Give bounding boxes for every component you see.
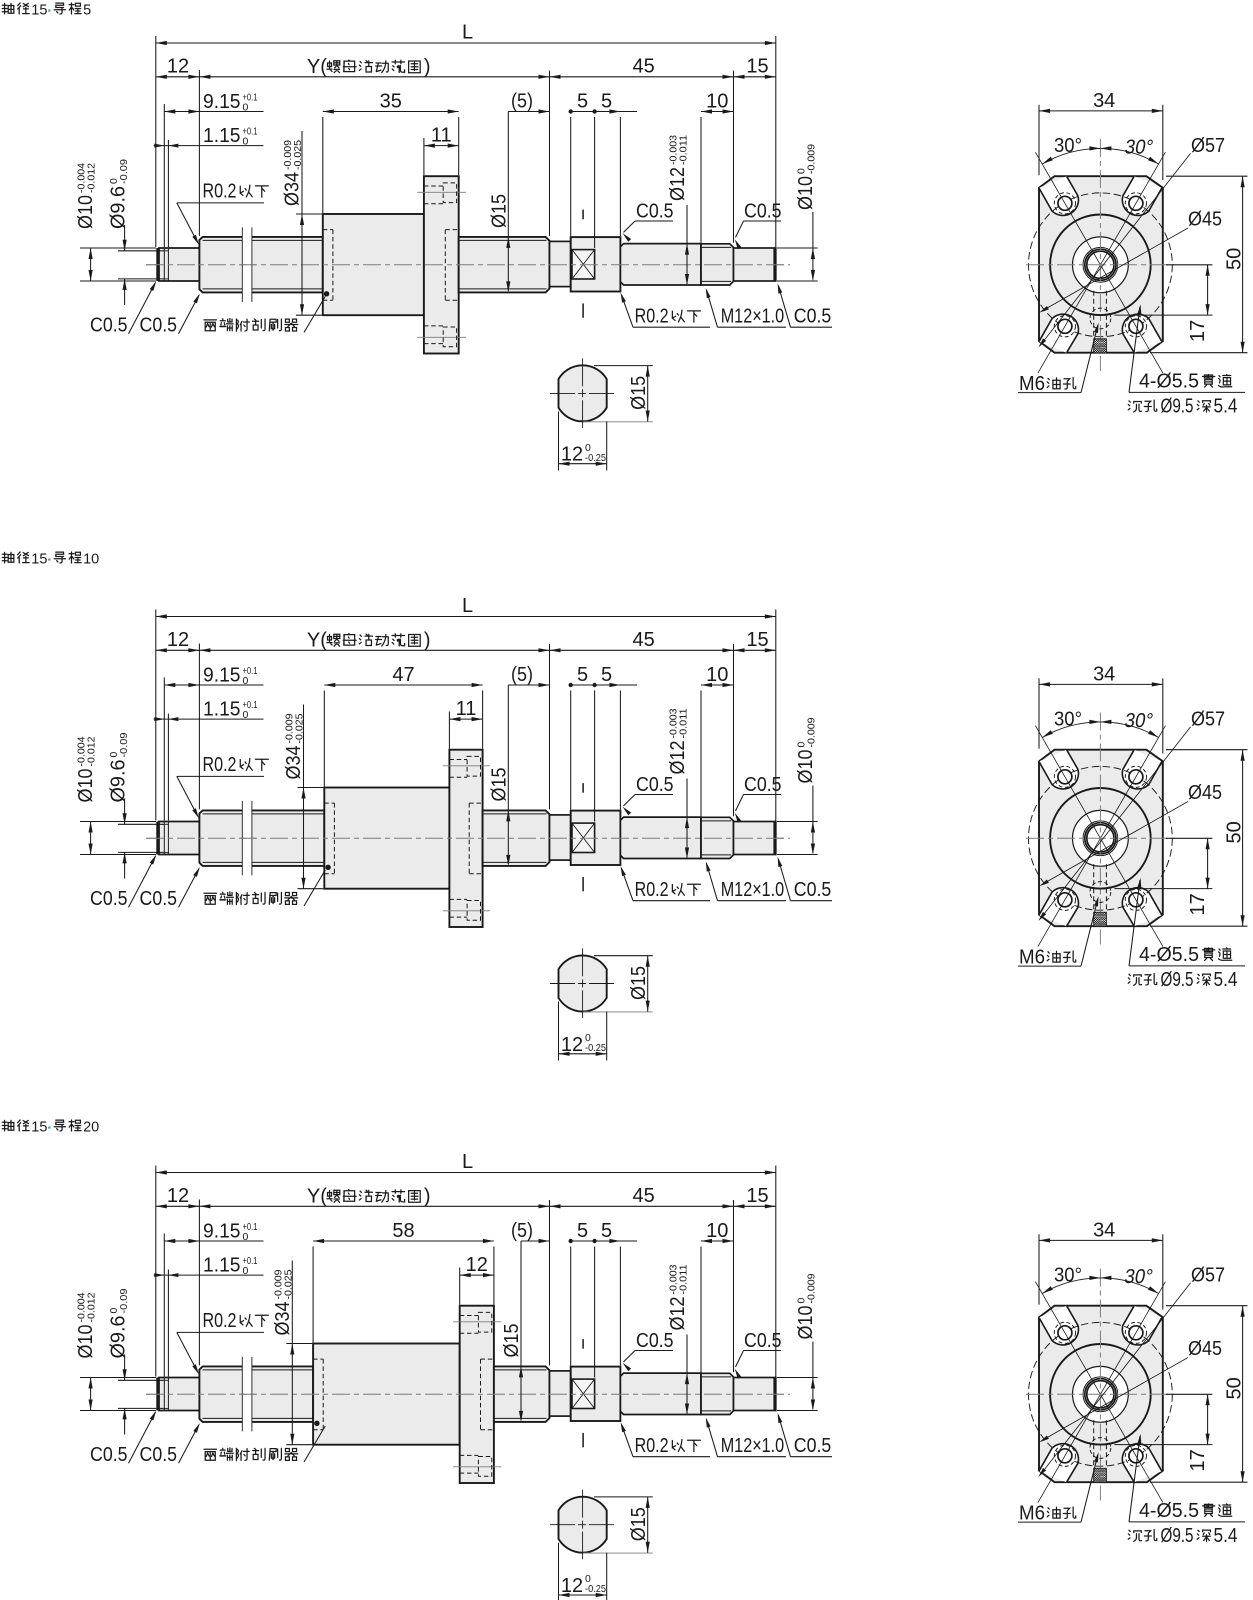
svg-text:Y(: Y( bbox=[307, 630, 327, 652]
svg-text:R0.2: R0.2 bbox=[203, 1310, 237, 1332]
svg-text:12: 12 bbox=[167, 56, 189, 78]
svg-text:C0.5: C0.5 bbox=[636, 774, 674, 796]
svg-text:R0.2: R0.2 bbox=[203, 181, 237, 203]
svg-text:4-Ø5.5: 4-Ø5.5 bbox=[1139, 1500, 1199, 1522]
svg-text:20: 20 bbox=[83, 1120, 99, 1136]
svg-text:Ø9.5: Ø9.5 bbox=[1161, 396, 1194, 418]
svg-text:1.15: 1.15 bbox=[203, 1255, 241, 1277]
svg-text:Ø9.5: Ø9.5 bbox=[1161, 969, 1194, 991]
svg-text:35: 35 bbox=[380, 91, 402, 113]
svg-text:-0.25: -0.25 bbox=[585, 1583, 606, 1595]
svg-text:Ø9.6: Ø9.6 bbox=[108, 760, 130, 803]
svg-text:12: 12 bbox=[466, 1254, 488, 1276]
svg-text:-0.011: -0.011 bbox=[678, 1264, 690, 1294]
svg-text:Ø9.5: Ø9.5 bbox=[1161, 1525, 1194, 1547]
svg-text:R0.2: R0.2 bbox=[635, 1435, 669, 1457]
svg-text:Ø15: Ø15 bbox=[489, 194, 511, 228]
svg-text:): ) bbox=[424, 630, 431, 652]
svg-text:50: 50 bbox=[1224, 248, 1246, 270]
svg-text:Ø34: Ø34 bbox=[272, 1302, 294, 1336]
svg-text:C0.5: C0.5 bbox=[744, 1330, 782, 1352]
svg-text:Ø10: Ø10 bbox=[795, 1306, 817, 1340]
svg-text:5: 5 bbox=[577, 664, 588, 686]
svg-text:15: 15 bbox=[31, 552, 47, 568]
svg-text:0: 0 bbox=[243, 675, 249, 687]
svg-text:5.4: 5.4 bbox=[1214, 969, 1238, 991]
svg-text:5.4: 5.4 bbox=[1214, 1525, 1238, 1547]
svg-text:C0.5: C0.5 bbox=[140, 315, 178, 337]
svg-text:Ø15: Ø15 bbox=[628, 966, 650, 1000]
svg-text:30°: 30° bbox=[1123, 710, 1155, 732]
svg-text:Ø15: Ø15 bbox=[489, 768, 511, 802]
svg-text:Y(: Y( bbox=[307, 1186, 327, 1208]
svg-text:C0.5: C0.5 bbox=[140, 888, 178, 910]
svg-text:C0.5: C0.5 bbox=[90, 888, 128, 910]
svg-text:C0.5: C0.5 bbox=[636, 1330, 674, 1352]
svg-text:Ø57: Ø57 bbox=[1191, 709, 1225, 731]
svg-text:9.15: 9.15 bbox=[203, 665, 241, 687]
svg-text:30°: 30° bbox=[1054, 1265, 1082, 1287]
svg-text:-0.009: -0.009 bbox=[806, 717, 818, 747]
svg-text:C0.5: C0.5 bbox=[90, 1444, 128, 1466]
svg-text:5: 5 bbox=[601, 91, 612, 113]
svg-text:-0.009: -0.009 bbox=[806, 144, 818, 174]
svg-text:30°: 30° bbox=[1123, 137, 1155, 159]
svg-text:Ø9.6: Ø9.6 bbox=[108, 186, 130, 229]
svg-text:9.15: 9.15 bbox=[203, 1221, 241, 1243]
svg-text:45: 45 bbox=[632, 56, 654, 78]
svg-text:Ø15: Ø15 bbox=[501, 1324, 523, 1358]
svg-text:C0.5: C0.5 bbox=[744, 201, 782, 223]
svg-text:Ø12: Ø12 bbox=[667, 1297, 689, 1331]
svg-text:R0.2: R0.2 bbox=[203, 754, 237, 776]
svg-text:50: 50 bbox=[1224, 1377, 1246, 1399]
svg-text:15: 15 bbox=[746, 1185, 768, 1207]
svg-text:5: 5 bbox=[601, 1220, 612, 1242]
svg-text:-0.09: -0.09 bbox=[118, 1288, 130, 1313]
svg-text:0: 0 bbox=[243, 1231, 249, 1243]
svg-text:17: 17 bbox=[1187, 320, 1209, 342]
svg-text:(5): (5) bbox=[511, 664, 533, 686]
svg-text:M6: M6 bbox=[1019, 373, 1045, 395]
svg-text:30°: 30° bbox=[1054, 709, 1082, 731]
svg-text:Ø15: Ø15 bbox=[628, 376, 650, 410]
svg-text:C0.5: C0.5 bbox=[794, 1435, 832, 1457]
svg-text:15: 15 bbox=[746, 629, 768, 651]
svg-text:): ) bbox=[424, 1186, 431, 1208]
svg-text:1.15: 1.15 bbox=[203, 699, 241, 721]
svg-text:4-Ø5.5: 4-Ø5.5 bbox=[1139, 371, 1199, 393]
svg-text:5.4: 5.4 bbox=[1214, 396, 1238, 418]
svg-text:47: 47 bbox=[392, 664, 414, 686]
svg-text:M12×1.0: M12×1.0 bbox=[721, 1435, 785, 1457]
svg-text:34: 34 bbox=[1093, 1220, 1115, 1242]
svg-text:30°: 30° bbox=[1123, 1266, 1155, 1288]
svg-text:-0.09: -0.09 bbox=[118, 732, 130, 757]
svg-text:30°: 30° bbox=[1054, 135, 1082, 157]
svg-text:M12×1.0: M12×1.0 bbox=[721, 879, 785, 901]
svg-text:L: L bbox=[462, 1151, 473, 1173]
svg-text:-0.25: -0.25 bbox=[585, 1042, 606, 1054]
svg-text:15: 15 bbox=[31, 1120, 47, 1136]
svg-text:12: 12 bbox=[561, 1034, 583, 1056]
svg-text:5: 5 bbox=[601, 664, 612, 686]
svg-text:Ø45: Ø45 bbox=[1188, 782, 1222, 804]
svg-text:-0.012: -0.012 bbox=[86, 736, 98, 766]
svg-text:45: 45 bbox=[632, 629, 654, 651]
svg-text:34: 34 bbox=[1093, 664, 1115, 686]
svg-text:0: 0 bbox=[243, 102, 249, 114]
svg-text:0: 0 bbox=[243, 1265, 249, 1277]
svg-text:11: 11 bbox=[456, 698, 477, 720]
svg-text:-0.011: -0.011 bbox=[678, 708, 690, 738]
svg-text:Ø10: Ø10 bbox=[795, 750, 817, 784]
svg-text:(5): (5) bbox=[511, 1220, 533, 1242]
svg-text:0: 0 bbox=[243, 709, 249, 721]
svg-text:-0.012: -0.012 bbox=[86, 163, 98, 193]
svg-text:Ø34: Ø34 bbox=[282, 172, 304, 206]
svg-text:M6: M6 bbox=[1019, 1503, 1045, 1525]
svg-text:Ø10: Ø10 bbox=[75, 195, 97, 229]
svg-text:C0.5: C0.5 bbox=[636, 201, 674, 223]
svg-text:12: 12 bbox=[167, 1185, 189, 1207]
svg-text:58: 58 bbox=[392, 1220, 414, 1242]
svg-text:C0.5: C0.5 bbox=[744, 774, 782, 796]
svg-text:-0.09: -0.09 bbox=[118, 159, 130, 184]
svg-text:C0.5: C0.5 bbox=[794, 879, 832, 901]
svg-text:9.15: 9.15 bbox=[203, 91, 241, 113]
svg-text:Ø9.6: Ø9.6 bbox=[108, 1316, 130, 1359]
svg-text:M6: M6 bbox=[1019, 947, 1045, 969]
svg-text:Ø10: Ø10 bbox=[75, 769, 97, 803]
svg-text:L: L bbox=[462, 595, 473, 617]
svg-text:(5): (5) bbox=[511, 91, 533, 113]
svg-text:C0.5: C0.5 bbox=[90, 315, 128, 337]
svg-text:0: 0 bbox=[243, 136, 249, 148]
svg-text:12: 12 bbox=[561, 1575, 583, 1597]
svg-text:1.15: 1.15 bbox=[203, 125, 241, 147]
svg-text:Ø45: Ø45 bbox=[1188, 209, 1222, 231]
svg-text:15: 15 bbox=[746, 56, 768, 78]
svg-text:11: 11 bbox=[431, 125, 452, 147]
svg-text:Ø57: Ø57 bbox=[1191, 135, 1225, 157]
svg-text:12: 12 bbox=[561, 444, 583, 466]
svg-text:-0.012: -0.012 bbox=[86, 1292, 98, 1322]
svg-text:12: 12 bbox=[167, 629, 189, 651]
svg-text:R0.2: R0.2 bbox=[635, 306, 669, 328]
svg-text:50: 50 bbox=[1224, 821, 1246, 843]
svg-text:-0.011: -0.011 bbox=[678, 135, 690, 165]
svg-text:5: 5 bbox=[577, 91, 588, 113]
svg-text:C0.5: C0.5 bbox=[794, 306, 832, 328]
svg-text:Ø12: Ø12 bbox=[667, 741, 689, 775]
svg-text:C0.5: C0.5 bbox=[140, 1444, 178, 1466]
svg-text:15: 15 bbox=[31, 3, 47, 19]
svg-text:Ø15: Ø15 bbox=[628, 1507, 650, 1541]
svg-text:Y(: Y( bbox=[307, 56, 327, 78]
svg-text:5: 5 bbox=[83, 3, 91, 19]
svg-text:L: L bbox=[462, 22, 473, 44]
svg-text:4-Ø5.5: 4-Ø5.5 bbox=[1139, 944, 1199, 966]
svg-text:10: 10 bbox=[706, 1220, 728, 1242]
svg-text:R0.2: R0.2 bbox=[635, 879, 669, 901]
svg-text:Ø10: Ø10 bbox=[795, 176, 817, 210]
svg-text:10: 10 bbox=[83, 552, 99, 568]
svg-text:M12×1.0: M12×1.0 bbox=[721, 306, 785, 328]
svg-text:-0.009: -0.009 bbox=[806, 1273, 818, 1303]
svg-text:5: 5 bbox=[577, 1220, 588, 1242]
svg-text:Ø12: Ø12 bbox=[667, 167, 689, 201]
svg-text:Ø34: Ø34 bbox=[283, 746, 305, 780]
svg-text:10: 10 bbox=[706, 664, 728, 686]
svg-text:10: 10 bbox=[706, 91, 728, 113]
svg-text:Ø10: Ø10 bbox=[75, 1325, 97, 1359]
svg-text:17: 17 bbox=[1187, 893, 1209, 915]
svg-text:-0.25: -0.25 bbox=[585, 452, 606, 464]
svg-text:17: 17 bbox=[1187, 1449, 1209, 1471]
svg-text:): ) bbox=[424, 56, 431, 78]
svg-text:45: 45 bbox=[632, 1185, 654, 1207]
svg-text:34: 34 bbox=[1093, 90, 1115, 112]
svg-text:Ø45: Ø45 bbox=[1188, 1338, 1222, 1360]
svg-text:Ø57: Ø57 bbox=[1191, 1265, 1225, 1287]
